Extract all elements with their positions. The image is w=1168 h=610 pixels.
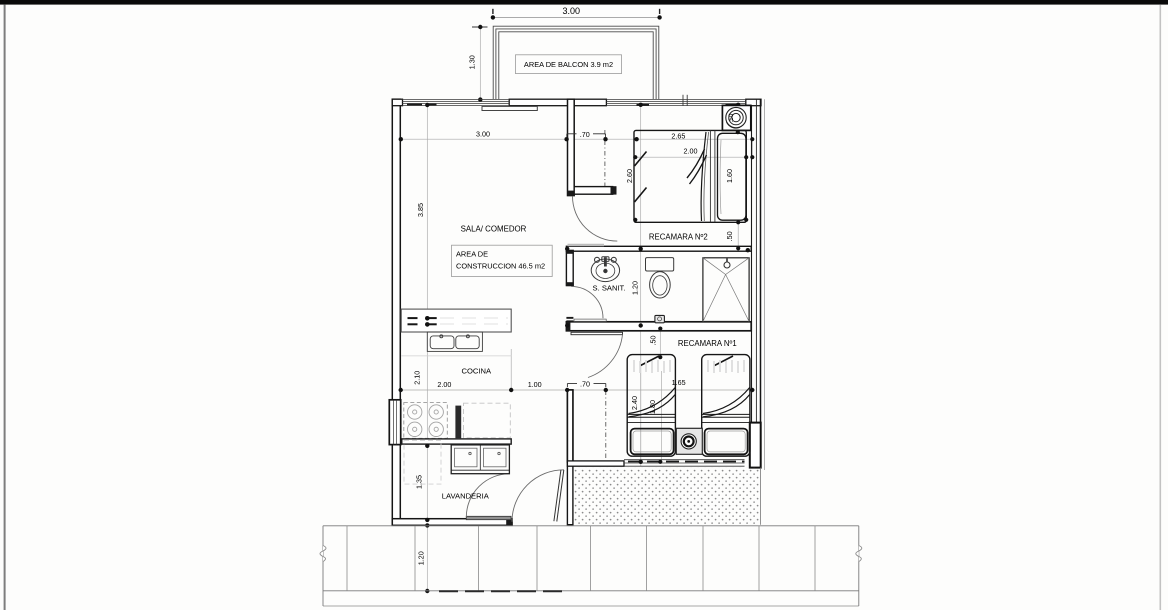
svg-text:.70: .70 — [580, 379, 590, 388]
svg-text:AREA DE BALCON 3.9 m2: AREA DE BALCON 3.9 m2 — [524, 60, 613, 69]
svg-text:3.00: 3.00 — [563, 6, 581, 16]
svg-text:1.35: 1.35 — [415, 475, 424, 489]
svg-text:COCINA: COCINA — [462, 366, 492, 375]
svg-text:.50: .50 — [648, 336, 657, 346]
svg-text:1.00: 1.00 — [528, 380, 542, 389]
svg-text:LAVANDERIA: LAVANDERIA — [442, 491, 490, 500]
svg-text:3.85: 3.85 — [416, 203, 425, 217]
svg-text:AREA DE: AREA DE — [456, 250, 488, 259]
svg-text:.50: .50 — [728, 113, 735, 122]
svg-text:3.00: 3.00 — [476, 130, 490, 139]
svg-text:2.60: 2.60 — [625, 169, 634, 183]
svg-text:.50: .50 — [725, 231, 734, 241]
svg-text:1.80: 1.80 — [648, 400, 657, 414]
svg-text:S. SANIT.: S. SANIT. — [593, 283, 626, 292]
svg-text:RECAMARA Nº1: RECAMARA Nº1 — [678, 339, 737, 348]
svg-text:1.60: 1.60 — [725, 169, 734, 183]
svg-text:.70: .70 — [580, 130, 590, 139]
svg-text:1.65: 1.65 — [672, 378, 686, 387]
svg-text:CONSTRUCCION 46.5 m2: CONSTRUCCION 46.5 m2 — [456, 261, 545, 270]
svg-text:2.10: 2.10 — [412, 371, 421, 385]
svg-text:2.65: 2.65 — [671, 131, 685, 140]
svg-text:1.20: 1.20 — [417, 551, 426, 565]
svg-text:1.30: 1.30 — [467, 55, 476, 69]
svg-text:2.00: 2.00 — [437, 380, 451, 389]
svg-text:SALA/ COMEDOR: SALA/ COMEDOR — [461, 224, 527, 233]
svg-text:2.00: 2.00 — [684, 146, 698, 155]
svg-text:RECAMARA Nº2: RECAMARA Nº2 — [649, 233, 708, 242]
svg-text:1.20: 1.20 — [631, 281, 640, 295]
svg-text:2.40: 2.40 — [630, 396, 639, 410]
